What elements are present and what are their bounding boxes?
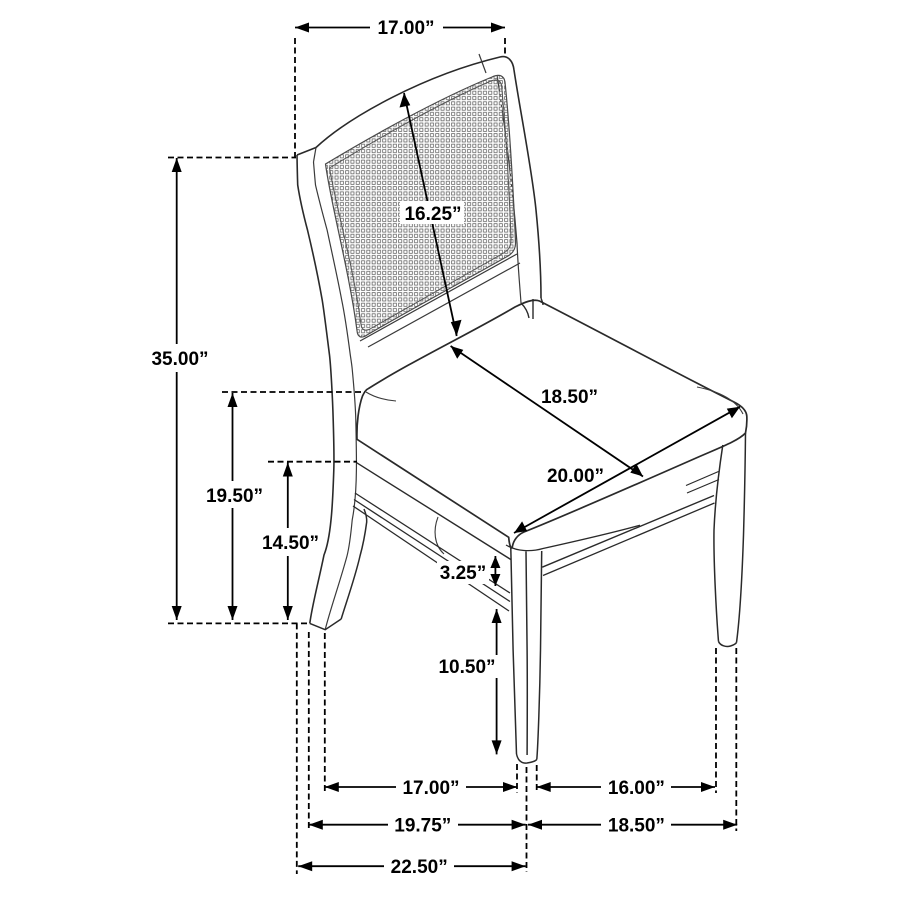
- svg-text:14.50”: 14.50”: [262, 533, 319, 554]
- svg-text:17.00”: 17.00”: [377, 18, 434, 39]
- svg-text:18.50”: 18.50”: [541, 387, 598, 408]
- svg-text:17.00”: 17.00”: [402, 778, 459, 799]
- svg-text:20.00”: 20.00”: [547, 466, 604, 487]
- svg-text:18.50”: 18.50”: [608, 816, 665, 837]
- svg-text:16.00”: 16.00”: [608, 778, 665, 799]
- svg-text:16.25”: 16.25”: [404, 204, 461, 225]
- svg-text:19.50”: 19.50”: [206, 486, 263, 507]
- svg-text:19.75”: 19.75”: [394, 816, 451, 837]
- svg-text:22.50”: 22.50”: [391, 857, 448, 878]
- svg-text:10.50”: 10.50”: [438, 657, 495, 678]
- svg-text:35.00”: 35.00”: [151, 349, 208, 370]
- svg-text:3.25”: 3.25”: [440, 563, 486, 584]
